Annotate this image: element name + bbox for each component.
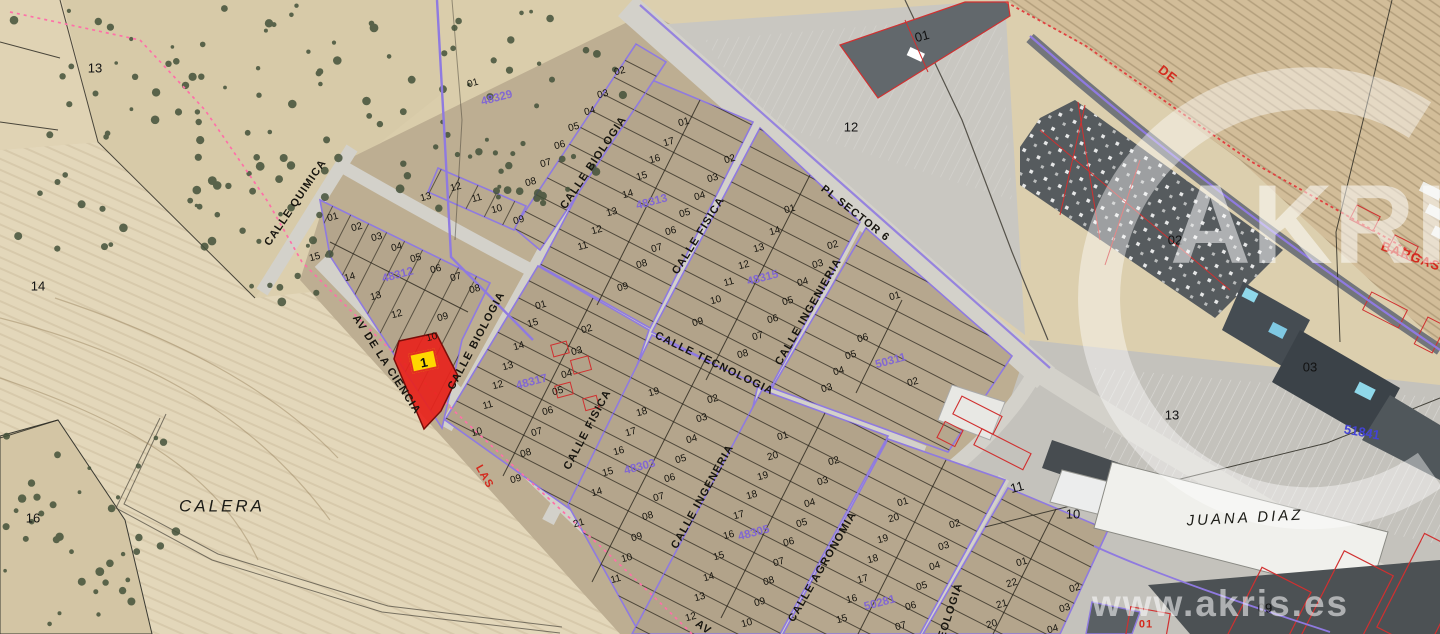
parcel-number-label: 01 <box>326 212 339 225</box>
parcel-number-label: 04 <box>693 191 706 204</box>
area-number-label: 13 <box>88 62 102 75</box>
parcel-number-label: 04 <box>1046 624 1059 634</box>
parcel-number-label: 14 <box>768 226 781 239</box>
parcel-number-label: 20 <box>887 513 900 526</box>
parcel-number-label: 07 <box>650 243 663 256</box>
parcel-number-label: 01 <box>534 300 547 313</box>
parcel-number-label: 05 <box>674 454 687 467</box>
parcel-number-label: 13 <box>693 592 706 605</box>
parcel-number-label: 08 <box>468 284 481 297</box>
area-number-label: 01 <box>913 28 930 44</box>
street-name-label: CALLE QUIMICA <box>263 158 329 248</box>
parcel-number-label: 06 <box>664 226 677 239</box>
street-name-label: CALLE INGENIERIA <box>774 257 844 368</box>
parcel-number-label: 03 <box>1058 603 1071 616</box>
parcel-number-label: 12 <box>491 380 504 393</box>
place-name-label: JUANA DIAZ <box>1186 507 1304 528</box>
block-id-label: 50311 <box>874 352 907 371</box>
parcel-number-label: 06 <box>429 264 442 277</box>
block-id-label: 48329 <box>480 89 514 108</box>
parcel-number-label: 06 <box>663 473 676 486</box>
area-number-label: 16 <box>26 512 40 525</box>
parcel-number-label: 18 <box>866 554 879 567</box>
parcel-number-label: 07 <box>772 557 785 570</box>
block-id-label: 50281 <box>863 594 897 613</box>
parcel-number-label: 14 <box>512 341 525 354</box>
place-name-label: CALERA <box>179 498 265 515</box>
block-id-label: 48315 <box>746 269 780 288</box>
parcel-number-label: 04 <box>796 277 809 290</box>
parcel-number-label: 04 <box>803 498 816 511</box>
parcel-number-label: 11 <box>471 193 484 205</box>
parcel-number-label: 09 <box>616 282 629 295</box>
parcel-number-label: 06 <box>782 537 795 550</box>
parcel-number-label: 12 <box>737 260 750 273</box>
ref-number-label: 51841 <box>1343 422 1381 441</box>
parcel-number-label: 06 <box>856 333 869 346</box>
parcel-number-label: 08 <box>635 259 648 272</box>
parcel-number-label: 09 <box>691 317 704 330</box>
parcel-number-label: 04 <box>832 366 845 379</box>
parcel-number-label: 19 <box>756 471 769 484</box>
parcel-number-label: 09 <box>509 474 522 487</box>
parcel-number-label: 02 <box>948 519 961 532</box>
parcel-number-label: 19 <box>876 534 889 547</box>
parcel-number-label: 03 <box>816 476 829 489</box>
parcel-number-label: 10 <box>490 204 503 217</box>
map-labels: 0102030405060708151413120910131211100901… <box>0 0 1440 634</box>
parcel-number-label: 10 <box>425 332 438 345</box>
parcel-number-label: 03 <box>596 89 609 102</box>
parcel-number-label: 02 <box>906 377 919 390</box>
street-name-label: CALLE BIOLOGIA <box>446 290 507 392</box>
parcel-number-label: 15 <box>601 467 614 480</box>
parcel-number-label: 22 <box>1005 578 1018 591</box>
parcel-number-label: 18 <box>635 407 648 420</box>
parcel-number-label: 02 <box>706 394 719 407</box>
street-name-label: EOLOGIA <box>937 582 966 634</box>
parcel-number-label: 14 <box>590 487 603 500</box>
parcel-number-label: 13 <box>419 192 432 205</box>
parcel-number-label: 06 <box>766 314 779 327</box>
parcel-number-label: 14 <box>621 189 634 202</box>
block-id-label: 48317 <box>515 373 549 392</box>
parcel-number-label: 06 <box>904 601 917 614</box>
parcel-number-label: 08 <box>519 448 532 461</box>
parcel-number-label: 05 <box>915 581 928 594</box>
map-canvas[interactable]: 0102030405060708151413120910131211100901… <box>0 0 1440 634</box>
parcel-number-label: 05 <box>567 122 580 135</box>
parcel-number-label: 02 <box>1068 583 1081 596</box>
parcel-number-label: 12 <box>590 225 603 238</box>
parcel-number-label: 07 <box>894 621 907 634</box>
parcel-number-label: 06 <box>541 406 554 419</box>
parcel-number-label: 02 <box>580 324 593 337</box>
parcel-number-label: 15 <box>635 171 648 184</box>
area-number-label: 13 <box>1165 409 1179 422</box>
parcel-number-label: 05 <box>844 350 857 363</box>
parcel-number-label: 05 <box>781 296 794 309</box>
street-name-label: PL SECTOR 6 <box>819 184 892 244</box>
parcel-number-label: 14 <box>702 572 715 585</box>
parcel-number-label: 05 <box>409 253 422 266</box>
area-number-label: 11 <box>1009 479 1025 495</box>
parcel-number-label: 07 <box>530 427 543 440</box>
parcel-number-label: 09 <box>630 532 643 545</box>
parcel-number-label: 05 <box>678 208 691 221</box>
area-number-label: 03 <box>1303 361 1317 374</box>
parcel-number-label: 02 <box>723 154 736 167</box>
boundary-name-label: 01 <box>1139 620 1153 631</box>
parcel-number-label: 03 <box>937 541 950 554</box>
parcel-number-label: 21 <box>572 518 585 531</box>
parcel-number-label: 14 <box>343 272 356 285</box>
parcel-number-label: 16 <box>648 154 661 167</box>
parcel-number-label: 07 <box>751 331 764 344</box>
parcel-number-label: 09 <box>753 597 766 610</box>
parcel-number-label: 07 <box>652 492 665 505</box>
area-number-label: 10 <box>1066 508 1080 521</box>
block-id-label: 48313 <box>635 193 669 212</box>
parcel-number-label: 05 <box>551 386 564 399</box>
parcel-number-label: 11 <box>482 400 495 412</box>
parcel-number-label: 01 <box>896 497 909 510</box>
parcel-number-label: 02 <box>350 222 363 235</box>
parcel-number-label: 13 <box>752 243 765 256</box>
parcel-number-label: 16 <box>722 530 735 543</box>
boundary-name-label: DE <box>1156 63 1180 86</box>
parcel-number-label: 13 <box>501 361 514 374</box>
parcel-number-label: 03 <box>811 259 824 272</box>
parcel-number-label: 03 <box>695 413 708 426</box>
parcel-number-label: 16 <box>612 446 625 459</box>
area-number-label: 02 <box>1168 234 1182 247</box>
parcel-number-label: 04 <box>390 242 403 255</box>
parcel-number-label: 18 <box>745 490 758 503</box>
parcel-number-label: 13 <box>369 291 382 304</box>
parcel-number-label: 02 <box>613 66 626 79</box>
parcel-number-label: 09 <box>436 312 449 325</box>
parcel-number-label: 10 <box>470 427 483 440</box>
parcel-number-label: 17 <box>662 137 675 150</box>
parcel-number-label: 11 <box>723 277 736 289</box>
street-name-label: CALLE FISICA <box>671 195 727 276</box>
block-id-label: 48312 <box>381 266 415 285</box>
parcel-number-label: 20 <box>766 451 779 464</box>
parcel-number-label: 04 <box>928 561 941 574</box>
parcel-number-label: 07 <box>449 272 462 285</box>
parcel-number-label: 03 <box>820 383 833 396</box>
parcel-number-label: 15 <box>712 551 725 564</box>
parcel-number-label: 12 <box>390 309 403 322</box>
parcel-number-label: 05 <box>795 518 808 531</box>
parcel-number-label: 03 <box>706 173 719 186</box>
parcel-number-label: 20 <box>985 619 998 632</box>
boundary-name-label: BARGAS <box>1379 239 1440 273</box>
block-id-label: 48305 <box>737 524 771 543</box>
parcel-number-label: 08 <box>524 177 537 190</box>
parcel-number-label: 07 <box>539 158 552 171</box>
parcel-number-label: 10 <box>740 618 753 631</box>
parcel-number-label: 17 <box>856 574 869 587</box>
parcel-number-label: 02 <box>826 240 839 253</box>
parcel-number-label: 21 <box>995 599 1008 612</box>
parcel-number-label: 01 <box>677 117 690 130</box>
parcel-number-label: 04 <box>583 106 596 119</box>
parcel-number-label: 08 <box>641 511 654 524</box>
parcel-number-label: 11 <box>577 241 590 253</box>
parcel-number-label: 01 <box>1015 557 1028 570</box>
parcel-number-label: 06 <box>553 140 566 153</box>
parcel-number-label: 09 <box>512 215 525 228</box>
parcel-number-label: 08 <box>736 349 749 362</box>
boundary-name-label: LAS <box>473 463 495 490</box>
parcel-number-label: 02 <box>827 456 840 469</box>
parcel-number-label: 15 <box>835 614 848 627</box>
parcel-number-label: 04 <box>560 369 573 382</box>
parcel-number-label: 11 <box>610 574 623 586</box>
parcel-number-label: 16 <box>845 594 858 607</box>
parcel-number-label: 19 <box>647 387 660 400</box>
parcel-number-label: 08 <box>762 576 775 589</box>
parcel-number-label: 01 <box>776 431 789 444</box>
parcel-number-label: 17 <box>732 510 745 523</box>
parcel-number-label: 12 <box>449 182 462 195</box>
parcel-number-label: 01 <box>466 78 479 91</box>
parcel-number-label: 15 <box>526 318 539 331</box>
parcel-number-label: 03 <box>570 346 583 359</box>
area-number-label: 14 <box>31 280 45 293</box>
area-number-label: 12 <box>844 121 858 134</box>
block-id-label: 48303 <box>623 458 657 477</box>
parcel-number-label: 10 <box>620 553 633 566</box>
parcel-number-label: 04 <box>685 434 698 447</box>
parcel-number-label: 17 <box>624 427 637 440</box>
parcel-number-label: 01 <box>783 204 796 217</box>
parcel-number-label: 01 <box>888 291 901 304</box>
parcel-number-label: 10 <box>709 295 722 308</box>
street-name-label: CALLE FISICA <box>562 388 613 472</box>
parcel-number-label: 15 <box>308 252 321 265</box>
area-number-label: 09 <box>1258 602 1272 615</box>
parcel-number-label: 13 <box>605 207 618 220</box>
parcel-number-label: 03 <box>370 232 383 245</box>
